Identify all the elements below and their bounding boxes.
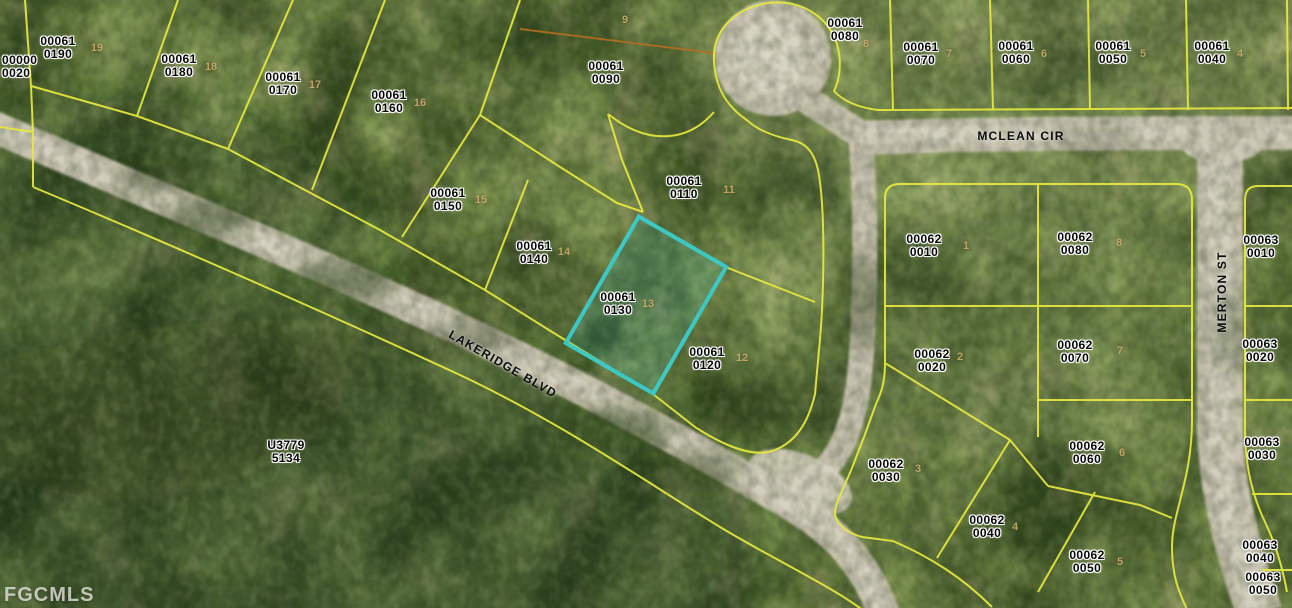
parcel-label: 00061 0040	[1194, 40, 1229, 66]
parcel-lot-number: 0050	[1069, 562, 1104, 575]
street-name-label: LAKERIDGE BLVD	[446, 327, 559, 400]
parcel-label: 00062 0050	[1069, 549, 1104, 575]
parcel-lot-number: 5134	[267, 452, 304, 465]
lot-number-faint: 12	[736, 352, 748, 364]
lot-number-faint: 16	[414, 97, 426, 109]
parcel-lot-number: 0010	[1243, 247, 1278, 260]
parcel-label: 00063 0010	[1243, 234, 1278, 260]
lot-number-faint: 18	[205, 61, 217, 73]
parcel-lot-number: 0070	[903, 54, 938, 67]
parcel-label: 00062 0060	[1069, 440, 1104, 466]
parcel-label: 00061 0190	[40, 35, 75, 61]
parcel-lot-number: 0090	[588, 73, 623, 86]
parcel-lot-number: 0040	[1194, 53, 1229, 66]
lot-number-faint: 7	[946, 48, 952, 60]
lot-number-faint: 8	[863, 38, 869, 50]
lot-number-faint: 7	[1117, 345, 1123, 357]
aerial-parcel-map: FGCMLS 00061 0190 00061 0180 00061 0170 …	[0, 0, 1292, 608]
parcel-lot-number: 0190	[40, 48, 75, 61]
lot-number-faint: 1	[963, 240, 969, 252]
street-name-label: MCLEAN CIR	[977, 129, 1064, 143]
lot-number-faint: 13	[642, 298, 654, 310]
lot-number-faint: 15	[475, 194, 487, 206]
parcel-lot-number: 0060	[1069, 453, 1104, 466]
parcel-label: 00061 0180	[161, 53, 196, 79]
parcel-label: 00061 0050	[1095, 40, 1130, 66]
parcel-label: 00062 0070	[1057, 339, 1092, 365]
parcel-lot-number: 0080	[1057, 244, 1092, 257]
parcel-label: 00061 0090	[588, 60, 623, 86]
parcel-label: 00062 0040	[969, 514, 1004, 540]
parcel-label: 00062 0080	[1057, 231, 1092, 257]
parcel-lot-number: 0020	[914, 361, 949, 374]
street-name-label: MERTON ST	[1215, 251, 1229, 332]
parcel-lot-number: 0130	[600, 304, 635, 317]
parcel-lot-number: 0080	[827, 30, 862, 43]
lot-number-faint: 2	[957, 351, 963, 363]
parcel-lot-number: 0040	[969, 527, 1004, 540]
parcel-lot-number: 0050	[1095, 53, 1130, 66]
parcel-label: 00061 0120	[689, 346, 724, 372]
parcel-lot-number: 0050	[1245, 584, 1280, 597]
parcel-lot-number: 0150	[430, 200, 465, 213]
parcel-lot-number: 0030	[868, 471, 903, 484]
parcel-label: 00063 0030	[1244, 436, 1279, 462]
parcel-label: 00061 0070	[903, 41, 938, 67]
parcel-lot-number: 0040	[1242, 552, 1277, 565]
parcel-label: U3779 5134	[267, 439, 304, 465]
lot-number-faint: 9	[622, 14, 628, 26]
label-layer: FGCMLS 00061 0190 00061 0180 00061 0170 …	[0, 0, 1292, 608]
parcel-label: 00062 0010	[906, 233, 941, 259]
parcel-lot-number: 0120	[689, 359, 724, 372]
parcel-label: 00061 0160	[371, 89, 406, 115]
parcel-label: 00061 0060	[998, 40, 1033, 66]
parcel-lot-number: 0030	[1244, 449, 1279, 462]
mls-watermark: FGCMLS	[4, 584, 94, 607]
parcel-label: 00063 0040	[1242, 539, 1277, 565]
lot-number-faint: 8	[1116, 237, 1122, 249]
parcel-lot-number: 0010	[906, 246, 941, 259]
parcel-lot-number: 0180	[161, 66, 196, 79]
lot-number-faint: 6	[1041, 48, 1047, 60]
parcel-lot-number: 0170	[265, 84, 300, 97]
parcel-label: 00063 0020	[1242, 338, 1277, 364]
lot-number-faint: 19	[91, 42, 103, 54]
parcel-lot-number: 0140	[516, 253, 551, 266]
parcel-label: 00062 0020	[914, 348, 949, 374]
lot-number-faint: 5	[1140, 48, 1146, 60]
parcel-label: 00061 0140	[516, 240, 551, 266]
parcel-lot-number: 0070	[1057, 352, 1092, 365]
parcel-lot-number: 0160	[371, 102, 406, 115]
parcel-lot-number: 0020	[2, 67, 37, 80]
lot-number-faint: 17	[309, 79, 321, 91]
lot-number-faint: 6	[1119, 447, 1125, 459]
lot-number-faint: 4	[1012, 521, 1018, 533]
parcel-label: 00063 0050	[1245, 571, 1280, 597]
lot-number-faint: 14	[558, 246, 570, 258]
parcel-lot-number: 0020	[1242, 351, 1277, 364]
lot-number-faint: 11	[723, 184, 735, 196]
parcel-label: 00061 0110	[666, 175, 701, 201]
parcel-lot-number: 0060	[998, 53, 1033, 66]
parcel-label: 00062 0030	[868, 458, 903, 484]
parcel-label: 00061 0150	[430, 187, 465, 213]
lot-number-faint: 5	[1117, 556, 1123, 568]
parcel-label: 00000 0020	[2, 54, 37, 80]
parcel-label: 00061 0130	[600, 291, 635, 317]
lot-number-faint: 3	[915, 463, 921, 475]
lot-number-faint: 4	[1237, 48, 1243, 60]
parcel-label: 00061 0170	[265, 71, 300, 97]
parcel-label: 00061 0080	[827, 17, 862, 43]
parcel-lot-number: 0110	[666, 188, 701, 201]
